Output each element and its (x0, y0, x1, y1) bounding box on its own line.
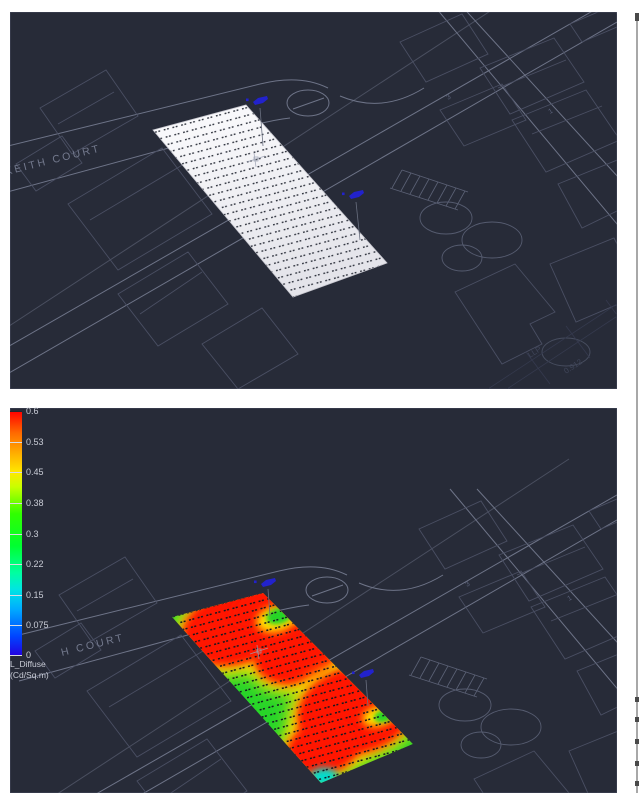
top-render-viewport[interactable]: LLP 0.912 3 1 KEITH COURT (10, 12, 617, 389)
edge-tick (635, 717, 639, 722)
page-edge-line (636, 13, 638, 793)
edge-tick (635, 13, 639, 21)
edge-tick (635, 697, 639, 702)
bottom-render-viewport[interactable]: H COURT (10, 408, 617, 793)
edge-tick (635, 761, 639, 766)
edge-tick (635, 781, 639, 786)
edge-tick (635, 739, 639, 744)
page: LLP 0.912 3 1 KEITH COURT (0, 0, 640, 809)
